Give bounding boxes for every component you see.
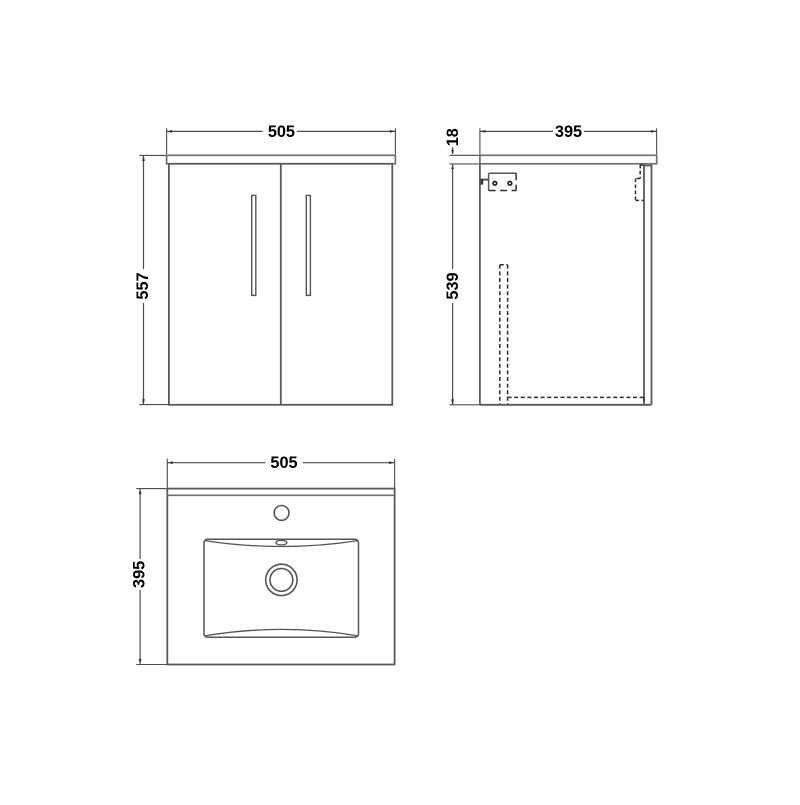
- svg-text:505: 505: [270, 454, 297, 472]
- svg-text:505: 505: [268, 123, 295, 141]
- svg-text:539: 539: [444, 272, 462, 299]
- svg-text:395: 395: [131, 561, 149, 588]
- svg-text:395: 395: [555, 123, 582, 141]
- svg-text:18: 18: [444, 128, 462, 146]
- svg-text:557: 557: [134, 272, 152, 299]
